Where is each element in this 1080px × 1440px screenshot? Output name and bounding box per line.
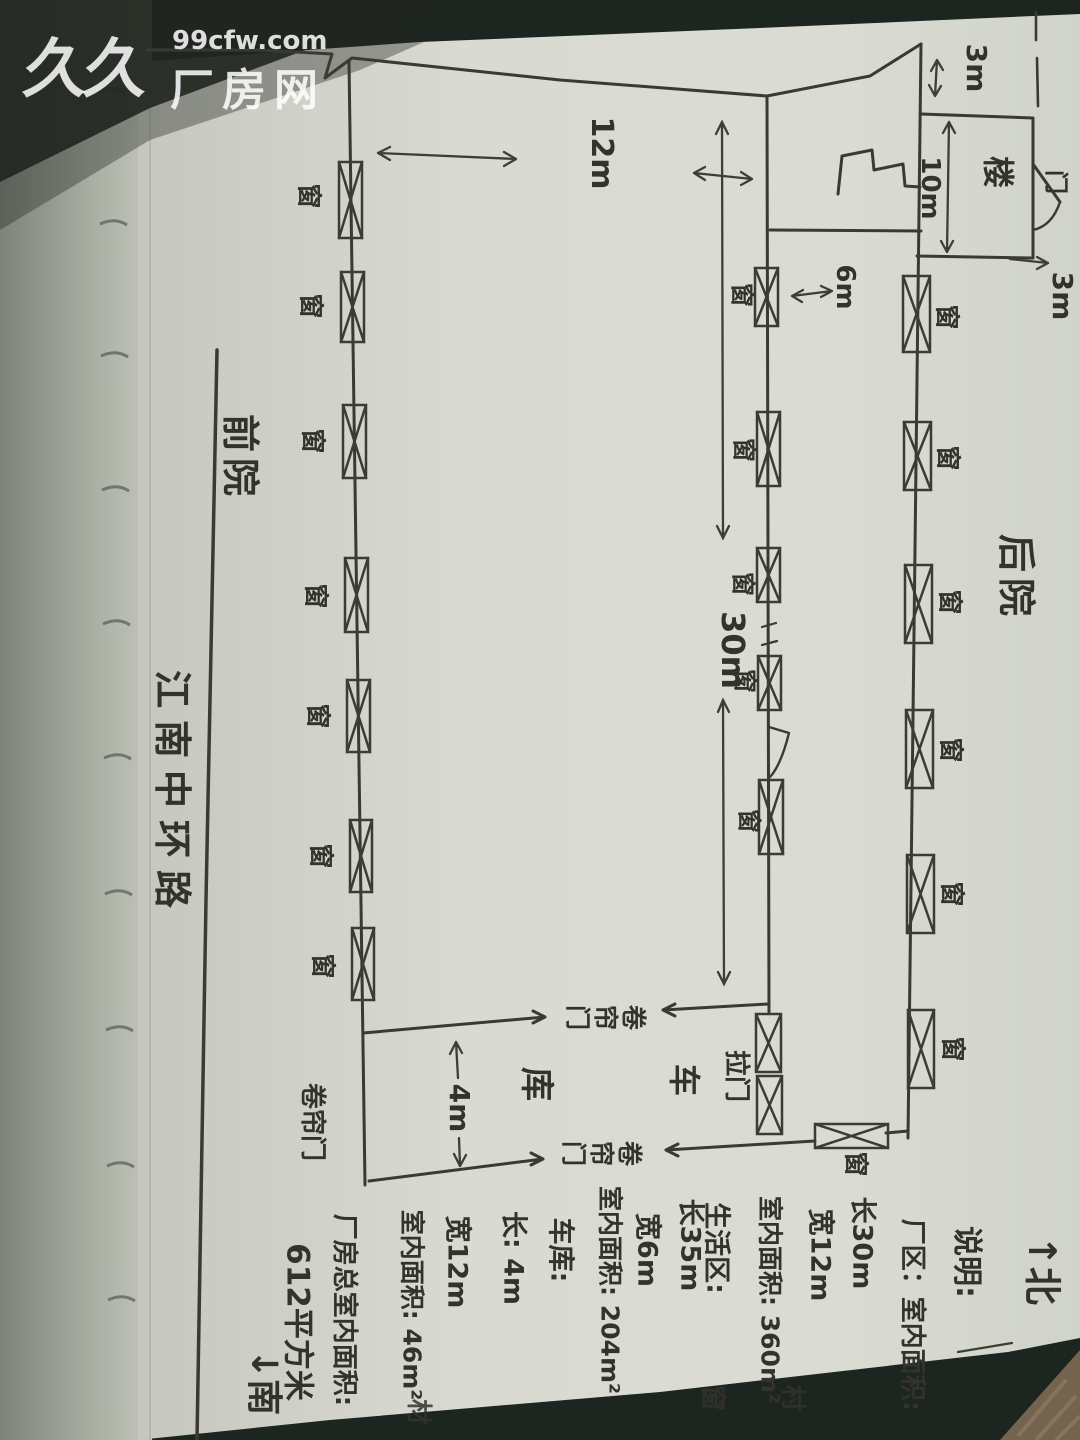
sliding-door-label: 拉门: [723, 1050, 749, 1102]
note-line: 长30m: [849, 1197, 876, 1290]
note-line: 厂区：室内面积:: [899, 1219, 925, 1411]
window-label: 窗: [306, 703, 331, 728]
note-line: 室内面积: 204m²: [598, 1186, 623, 1394]
window-label: 窗: [301, 428, 326, 453]
photo-of-floor-plan: 前院 后院 江南中环路 ↑北 ↓南 12m 30m 6m 3m 10m 3m 4…: [0, 0, 1080, 1440]
window-label: 窗: [940, 881, 965, 906]
door-label: 门: [1044, 170, 1068, 194]
edge-char: 窗: [699, 1385, 725, 1411]
note-line: 长35m: [677, 1199, 704, 1292]
window-label: 窗: [730, 283, 754, 307]
north-compass-label: ↑北: [1023, 1235, 1061, 1305]
edge-char: 村: [779, 1385, 805, 1411]
road-label: 江南中环路: [153, 670, 191, 920]
window-label: 窗: [309, 843, 334, 868]
south-compass-label: ↓南: [245, 1349, 281, 1415]
stairs-label: 楼: [982, 156, 1014, 188]
dim-6m-label: 6m: [832, 264, 858, 309]
window-label: 窗: [737, 809, 761, 833]
edge-char: 材: [405, 1399, 431, 1425]
window-label: 窗: [299, 293, 324, 318]
window-label: 窗: [941, 1036, 966, 1061]
window-label: 窗: [936, 445, 961, 470]
dim-12m-label: 12m: [586, 116, 616, 189]
note-line: 宽6m: [634, 1213, 661, 1287]
watermark-site-name: 厂房网: [170, 54, 326, 118]
window-label: 窗: [939, 737, 964, 762]
roller-door-label: 卷帘门: [299, 1083, 325, 1161]
middle-wall: [767, 96, 769, 1012]
watermark-site-url: 99cfw.com: [172, 26, 328, 56]
notes-title: 说明:: [951, 1226, 981, 1298]
dim-4m-label: 4m: [445, 1084, 473, 1133]
dim-3m-bottom-label: 3m: [1048, 272, 1076, 321]
window-label: 窗: [311, 953, 336, 978]
window-label: 窗: [733, 669, 757, 693]
window-label: 窗: [731, 572, 755, 596]
garage-room-label: 库: [519, 1067, 553, 1101]
window-label: 窗: [304, 583, 329, 608]
watermark-logo-icon: 久久: [18, 18, 154, 110]
note-line: 宽12m: [807, 1209, 834, 1302]
note-line: 厂房总室内面积:: [331, 1214, 357, 1406]
window-label: 窗: [938, 589, 963, 614]
note-line: 612平方米: [282, 1243, 313, 1401]
note-line: 车库:: [547, 1218, 574, 1283]
window-label: 窗: [935, 304, 960, 329]
note-line: 室内面积: 46m²: [400, 1210, 425, 1401]
window-label: 窗: [732, 438, 756, 462]
watermark: 久久 99cfw.com 厂房网: [0, 0, 380, 125]
window-label: 窗: [844, 1151, 869, 1176]
dim-3m-top-label: 3m: [962, 44, 990, 93]
dim-10m-label: 10m: [917, 156, 943, 219]
note-line: 宽12m: [444, 1216, 471, 1309]
note-line: 室内面积: 360m²: [758, 1196, 783, 1404]
note-line: 长: 4m: [500, 1211, 527, 1305]
roller-door-label: 卷帘门: [563, 1004, 647, 1029]
back-yard-label: 后院: [997, 534, 1035, 622]
vehicle-label: 车: [668, 1064, 700, 1096]
roller-door-label: 卷帘门: [559, 1140, 643, 1165]
note-line: 生活区:: [703, 1202, 730, 1294]
front-yard-label: 前院: [221, 414, 259, 502]
window-label: 窗: [297, 183, 322, 208]
